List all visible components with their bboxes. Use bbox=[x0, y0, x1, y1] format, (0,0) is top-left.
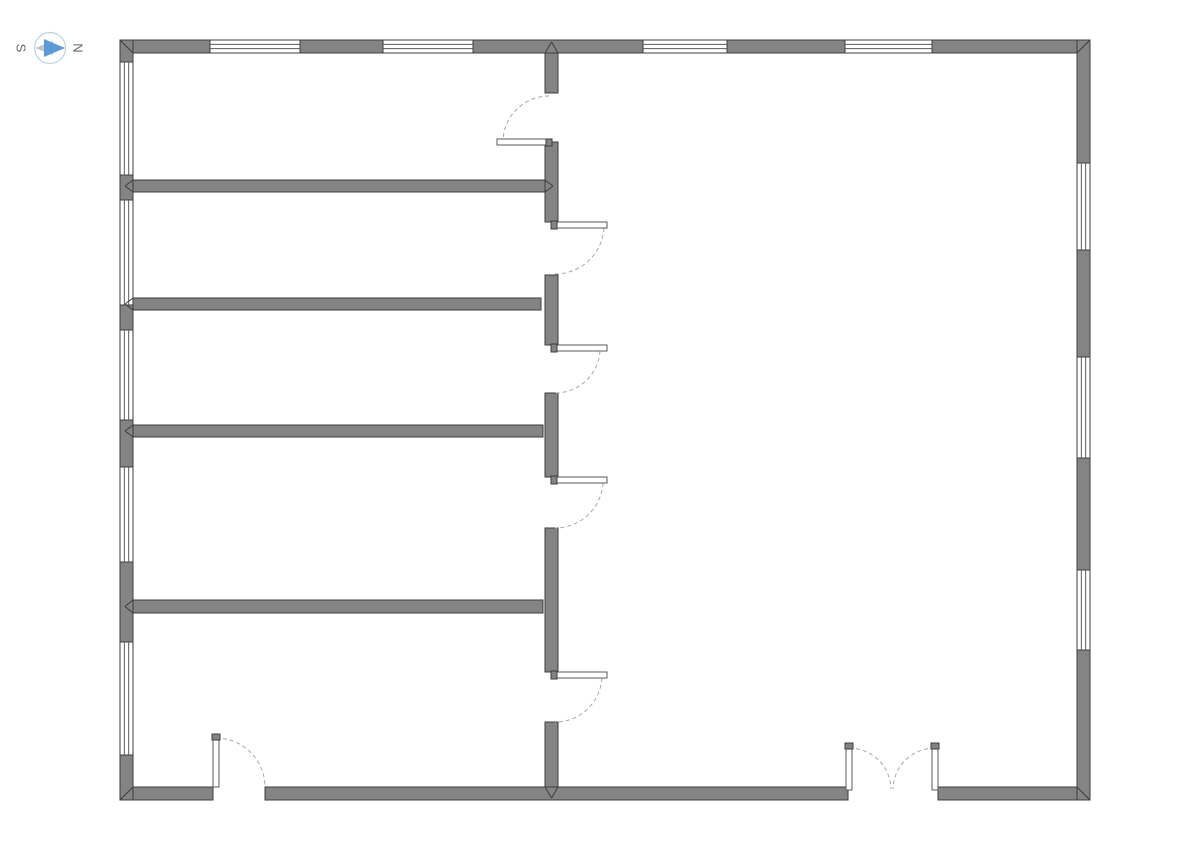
window-frame[interactable] bbox=[120, 467, 133, 562]
window-frame[interactable] bbox=[1077, 357, 1090, 458]
window-left-1[interactable] bbox=[120, 62, 133, 175]
door-hinge-cap bbox=[845, 743, 853, 749]
door-swing-arc bbox=[849, 748, 891, 789]
door-room3[interactable] bbox=[551, 344, 607, 393]
window-right-1[interactable] bbox=[1077, 163, 1090, 250]
doors-layer bbox=[212, 96, 939, 790]
middle-wall-segment[interactable] bbox=[545, 393, 558, 477]
double-door-right-leaf[interactable] bbox=[893, 743, 939, 790]
door-room1[interactable] bbox=[497, 96, 552, 146]
door-room4[interactable] bbox=[551, 476, 607, 528]
door-swing-arc bbox=[555, 678, 602, 722]
door-hinge-cap bbox=[212, 734, 220, 740]
door-hinge-cap bbox=[931, 743, 939, 749]
door-leaf[interactable] bbox=[932, 745, 938, 790]
interior-wall-2[interactable] bbox=[133, 298, 541, 310]
bottom-wall-segment[interactable] bbox=[938, 787, 1090, 800]
door-leaf[interactable] bbox=[552, 672, 607, 678]
interior-wall-3[interactable] bbox=[133, 425, 543, 437]
door-swing-arc bbox=[555, 351, 600, 393]
window-frame[interactable] bbox=[120, 62, 133, 175]
door-exterior-left[interactable] bbox=[212, 734, 265, 787]
middle-wall-segment[interactable] bbox=[545, 275, 558, 345]
window-frame[interactable] bbox=[845, 40, 932, 53]
walls-layer bbox=[120, 40, 1090, 800]
window-top-4[interactable] bbox=[845, 40, 932, 53]
door-room2[interactable] bbox=[551, 221, 607, 274]
window-right-3[interactable] bbox=[1077, 570, 1090, 650]
door-leaf[interactable] bbox=[846, 745, 852, 790]
door-leaf[interactable] bbox=[497, 139, 552, 145]
middle-wall-segment[interactable] bbox=[545, 722, 558, 787]
door-leaf[interactable] bbox=[552, 477, 607, 483]
right-wall-segment[interactable] bbox=[1077, 250, 1090, 357]
door-hinge-cap bbox=[551, 344, 557, 352]
window-frame[interactable] bbox=[120, 200, 133, 305]
window-frame[interactable] bbox=[643, 40, 727, 53]
window-frame[interactable] bbox=[1077, 570, 1090, 650]
door-swing-arc bbox=[555, 228, 604, 274]
bottom-wall-segment[interactable] bbox=[120, 787, 213, 800]
door-swing-arc bbox=[216, 738, 265, 787]
interior-wall-1[interactable] bbox=[133, 180, 545, 192]
door-swing-arc bbox=[503, 96, 549, 142]
door-swing-arc bbox=[555, 483, 603, 528]
floorplan-canvas: S N bbox=[0, 0, 1190, 842]
middle-wall-segment[interactable] bbox=[545, 53, 558, 93]
door-swing-arc bbox=[893, 748, 935, 789]
right-wall-segment[interactable] bbox=[1077, 40, 1090, 163]
window-frame[interactable] bbox=[120, 330, 133, 420]
top-wall-segment[interactable] bbox=[932, 40, 1090, 53]
window-left-5[interactable] bbox=[120, 642, 133, 755]
windows-layer bbox=[120, 40, 1090, 755]
top-wall-segment[interactable] bbox=[473, 40, 643, 53]
interior-wall-4[interactable] bbox=[133, 600, 543, 613]
window-top-1[interactable] bbox=[210, 40, 300, 53]
double-door-left-leaf[interactable] bbox=[845, 743, 891, 790]
window-frame[interactable] bbox=[1077, 163, 1090, 250]
door-room5[interactable] bbox=[551, 671, 607, 722]
compass-south-label: S bbox=[14, 44, 29, 53]
door-hinge-cap bbox=[551, 221, 557, 229]
middle-wall-segment[interactable] bbox=[545, 528, 558, 672]
window-left-2[interactable] bbox=[120, 200, 133, 305]
compass-north-label: N bbox=[71, 43, 86, 52]
window-right-2[interactable] bbox=[1077, 357, 1090, 458]
door-hinge-cap bbox=[546, 139, 552, 146]
right-wall-segment[interactable] bbox=[1077, 458, 1090, 570]
door-hinge-cap bbox=[551, 671, 557, 679]
window-left-4[interactable] bbox=[120, 467, 133, 562]
top-wall-segment[interactable] bbox=[727, 40, 845, 53]
compass: S N bbox=[14, 33, 86, 64]
window-top-3[interactable] bbox=[643, 40, 727, 53]
window-top-2[interactable] bbox=[383, 40, 473, 53]
door-leaf[interactable] bbox=[552, 222, 607, 228]
window-frame[interactable] bbox=[210, 40, 300, 53]
door-leaf[interactable] bbox=[552, 345, 607, 351]
right-wall-segment[interactable] bbox=[1077, 650, 1090, 800]
miters-layer bbox=[120, 40, 1090, 800]
window-frame[interactable] bbox=[383, 40, 473, 53]
window-frame[interactable] bbox=[120, 642, 133, 755]
top-wall-segment[interactable] bbox=[300, 40, 383, 53]
floorplan-svg: S N bbox=[0, 0, 1190, 842]
window-left-3[interactable] bbox=[120, 330, 133, 420]
door-hinge-cap bbox=[551, 476, 557, 484]
door-leaf[interactable] bbox=[213, 735, 219, 787]
